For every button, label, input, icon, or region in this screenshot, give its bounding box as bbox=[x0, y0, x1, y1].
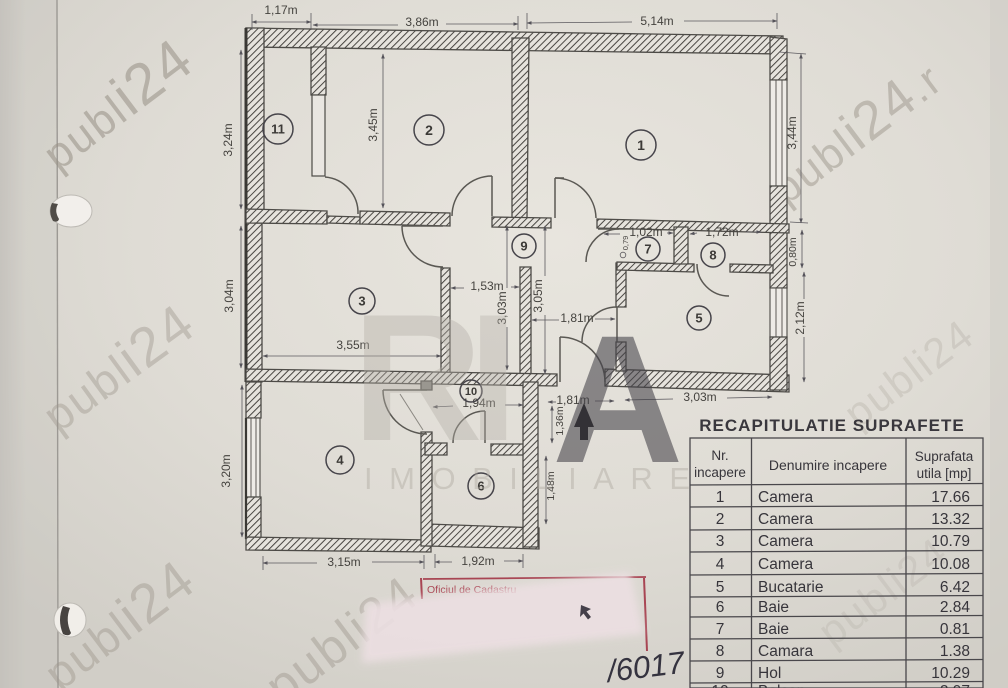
svg-text:4: 4 bbox=[716, 556, 725, 573]
svg-text:1,72m: 1,72m bbox=[705, 225, 738, 239]
svg-text:3: 3 bbox=[716, 533, 725, 550]
svg-text:8: 8 bbox=[716, 643, 725, 660]
svg-text:5,14m: 5,14m bbox=[640, 14, 673, 28]
svg-text:10.79: 10.79 bbox=[931, 533, 970, 550]
svg-text:Denumire incapere: Denumire incapere bbox=[769, 457, 887, 473]
svg-text:3,20m: 3,20m bbox=[219, 454, 233, 487]
svg-text:Baie: Baie bbox=[758, 599, 789, 616]
svg-text:5: 5 bbox=[716, 579, 725, 596]
svg-text:2: 2 bbox=[425, 122, 433, 138]
svg-text:9: 9 bbox=[520, 239, 527, 254]
svg-text:7: 7 bbox=[644, 242, 651, 257]
svg-text:10.29: 10.29 bbox=[931, 665, 970, 682]
svg-text:3,04m: 3,04m bbox=[222, 279, 236, 312]
svg-text:1: 1 bbox=[716, 489, 725, 506]
svg-text:3,05m: 3,05m bbox=[531, 279, 545, 312]
svg-text:4: 4 bbox=[336, 453, 344, 468]
svg-text:incapere: incapere bbox=[694, 465, 746, 480]
svg-text:Baie: Baie bbox=[758, 621, 789, 638]
svg-text:5: 5 bbox=[695, 311, 702, 326]
svg-text:I: I bbox=[468, 277, 518, 479]
svg-text:1,17m: 1,17m bbox=[264, 3, 297, 17]
svg-text:R: R bbox=[352, 277, 483, 479]
svg-text:17.66: 17.66 bbox=[931, 489, 970, 506]
svg-text:1,92m: 1,92m bbox=[461, 554, 494, 568]
svg-text:Camera: Camera bbox=[758, 556, 814, 573]
svg-text:0,80m: 0,80m bbox=[787, 237, 799, 266]
svg-text:8: 8 bbox=[709, 248, 716, 263]
svg-text:Camera: Camera bbox=[758, 533, 814, 550]
svg-text:RECAPITULATIE SUPRAFETE: RECAPITULATIE SUPRAFETE bbox=[699, 416, 964, 435]
svg-text:1: 1 bbox=[637, 137, 645, 153]
svg-text:2.97: 2.97 bbox=[940, 683, 970, 688]
svg-text:0,79: 0,79 bbox=[621, 236, 630, 251]
svg-text:Balcon: Balcon bbox=[758, 683, 805, 688]
svg-text:3,24m: 3,24m bbox=[221, 123, 235, 156]
svg-text:Camara: Camara bbox=[758, 643, 814, 660]
svg-text:Hol: Hol bbox=[758, 665, 781, 682]
svg-text:10: 10 bbox=[711, 683, 729, 688]
svg-text:10.08: 10.08 bbox=[931, 556, 970, 573]
svg-text:Camera: Camera bbox=[758, 489, 814, 506]
svg-text:Bucatarie: Bucatarie bbox=[758, 579, 823, 596]
svg-text:1.38: 1.38 bbox=[940, 643, 970, 660]
svg-text:13.32: 13.32 bbox=[931, 511, 970, 528]
svg-text:9: 9 bbox=[716, 665, 725, 682]
svg-text:2,12m: 2,12m bbox=[793, 301, 807, 334]
svg-text:6: 6 bbox=[716, 599, 725, 616]
svg-text:Suprafata: Suprafata bbox=[915, 449, 974, 464]
svg-text:0.81: 0.81 bbox=[940, 621, 970, 638]
svg-text:3,15m: 3,15m bbox=[327, 555, 360, 569]
svg-text:utila [mp]: utila [mp] bbox=[917, 466, 972, 481]
svg-text:6.42: 6.42 bbox=[940, 579, 970, 596]
svg-text:7: 7 bbox=[716, 621, 725, 638]
svg-text:3,45m: 3,45m bbox=[366, 108, 380, 141]
svg-text:11: 11 bbox=[271, 122, 285, 137]
svg-text:3,03m: 3,03m bbox=[683, 390, 716, 404]
svg-text:3,86m: 3,86m bbox=[405, 15, 438, 29]
svg-text:3,44m: 3,44m bbox=[785, 116, 799, 149]
svg-text:2: 2 bbox=[716, 511, 725, 528]
svg-text:2.84: 2.84 bbox=[940, 599, 971, 616]
svg-text:Nr.: Nr. bbox=[711, 448, 728, 463]
svg-text:Camera: Camera bbox=[758, 511, 814, 528]
